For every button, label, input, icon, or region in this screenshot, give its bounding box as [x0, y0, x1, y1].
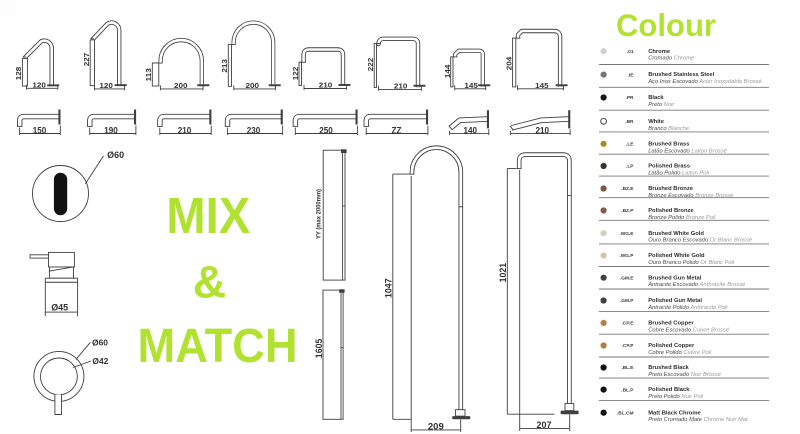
- svg-text:Ø60: Ø60: [92, 337, 108, 347]
- svg-text:Preto Escovado Noir Brossé: Preto Escovado Noir Brossé: [648, 372, 722, 378]
- svg-text:Polished Brass: Polished Brass: [648, 164, 690, 170]
- svg-text:.BL.CM: .BL.CM: [617, 410, 634, 416]
- svg-text:.BL.P: .BL.P: [621, 387, 634, 393]
- svg-text:200: 200: [246, 81, 260, 90]
- svg-text:.CP.E: .CP.E: [622, 321, 635, 327]
- svg-text:128: 128: [14, 67, 23, 81]
- svg-text:210: 210: [178, 126, 192, 136]
- svg-text:Brushed Bronze: Brushed Bronze: [648, 186, 694, 192]
- svg-text:&: &: [193, 257, 227, 308]
- svg-text:YY (max 2000mm): YY (max 2000mm): [316, 189, 323, 239]
- svg-text:Brushed White Gold: Brushed White Gold: [648, 231, 704, 237]
- svg-text:145: 145: [535, 81, 549, 90]
- svg-text:Preto Polido Noir Poli: Preto Polido Noir Poli: [648, 394, 704, 400]
- svg-text:.01: .01: [627, 49, 634, 55]
- svg-text:.BZ.E: .BZ.E: [621, 186, 634, 192]
- svg-text:Preto Noir: Preto Noir: [648, 102, 675, 108]
- svg-text:.GM.P: .GM.P: [620, 298, 634, 304]
- svg-text:Black: Black: [648, 95, 664, 101]
- svg-text:Ouro Branco Polido Or Blanc Po: Ouro Branco Polido Or Blanc Poli: [648, 260, 735, 266]
- svg-text:.LP: .LP: [626, 164, 634, 170]
- svg-text:Bronze Polido Bronze Poli: Bronze Polido Bronze Poli: [648, 215, 716, 221]
- svg-text:Chrome: Chrome: [648, 49, 671, 55]
- svg-text:.IE: .IE: [628, 72, 635, 78]
- svg-text:Ø60: Ø60: [107, 150, 124, 160]
- svg-text:.PR: .PR: [626, 95, 635, 101]
- svg-text:144: 144: [443, 64, 452, 78]
- svg-text:Polished Black: Polished Black: [648, 387, 690, 393]
- svg-text:Antracite Escovado Anthracite: Antracite Escovado Anthracite Brossé: [647, 282, 746, 288]
- svg-text:.BZ.P: .BZ.P: [621, 208, 634, 214]
- svg-text:.BL.E: .BL.E: [621, 365, 634, 371]
- svg-text:1047: 1047: [383, 278, 393, 298]
- svg-text:ZZ: ZZ: [392, 126, 402, 136]
- svg-text:227: 227: [82, 53, 91, 67]
- svg-text:.WG.E: .WG.E: [619, 231, 634, 237]
- svg-text:Brushed Brass: Brushed Brass: [648, 141, 689, 147]
- svg-text:Brushed Gun Metal: Brushed Gun Metal: [648, 275, 702, 281]
- svg-text:MIX: MIX: [166, 187, 250, 244]
- svg-text:213: 213: [220, 59, 229, 73]
- svg-text:250: 250: [319, 126, 333, 136]
- svg-text:Cobre Polido Cuivre Poli: Cobre Polido Cuivre Poli: [648, 350, 712, 356]
- svg-text:Colour: Colour: [616, 7, 716, 43]
- svg-text:White: White: [648, 119, 665, 125]
- svg-text:Antracite Polido Anthracite Po: Antracite Polido Anthracite Poli: [647, 305, 728, 311]
- svg-text:.GM.E: .GM.E: [620, 275, 634, 281]
- svg-text:Polished Gun Metal: Polished Gun Metal: [648, 298, 702, 304]
- svg-text:209: 209: [428, 421, 444, 432]
- svg-text:Polished Bronze: Polished Bronze: [648, 208, 694, 214]
- svg-text:210: 210: [319, 81, 333, 90]
- svg-text:1021: 1021: [498, 263, 508, 283]
- svg-text:Cobre Escovado Cuivre Brossé: Cobre Escovado Cuivre Brossé: [648, 327, 730, 333]
- svg-text:113: 113: [144, 68, 153, 82]
- svg-text:Cromado Chrome: Cromado Chrome: [648, 56, 695, 62]
- svg-text:222: 222: [366, 58, 375, 72]
- svg-text:Matt Black Chrome: Matt Black Chrome: [648, 410, 701, 416]
- svg-text:230: 230: [247, 126, 261, 136]
- svg-text:Brushed Copper: Brushed Copper: [648, 321, 694, 327]
- svg-text:204: 204: [505, 56, 514, 70]
- svg-text:200: 200: [174, 81, 188, 90]
- svg-text:Ouro Branco Escovado Or Blanc: Ouro Branco Escovado Or Blanc Brossé: [648, 238, 753, 244]
- svg-text:207: 207: [537, 420, 552, 431]
- svg-text:Aço Inox Escovado Acier Inoxyd: Aço Inox Escovado Acier Inoxydable Bross…: [647, 79, 762, 85]
- svg-text:Latão Polido Laiton Poli: Latão Polido Laiton Poli: [648, 171, 710, 177]
- svg-text:Brushed Black: Brushed Black: [648, 365, 689, 371]
- svg-text:120: 120: [32, 80, 46, 89]
- svg-text:.WG.P: .WG.P: [619, 253, 634, 259]
- svg-text:.CP.P: .CP.P: [622, 343, 635, 349]
- svg-text:Branco Blanche: Branco Blanche: [648, 126, 690, 132]
- svg-text:Polished Copper: Polished Copper: [648, 343, 695, 349]
- svg-text:140: 140: [464, 126, 478, 136]
- svg-text:145: 145: [464, 81, 478, 90]
- svg-text:1605: 1605: [314, 339, 324, 359]
- svg-text:Ø45: Ø45: [51, 302, 68, 312]
- svg-text:Brushed Stainless Steel: Brushed Stainless Steel: [648, 72, 714, 78]
- svg-text:MATCH: MATCH: [138, 320, 298, 373]
- svg-text:Ø42: Ø42: [92, 356, 108, 366]
- svg-text:.BR: .BR: [625, 119, 634, 125]
- svg-text:120: 120: [99, 81, 113, 90]
- svg-text:.LE: .LE: [626, 142, 634, 148]
- svg-text:Latão Escovado Laiton Brossé: Latão Escovado Laiton Brossé: [648, 148, 727, 154]
- svg-text:Polished White Gold: Polished White Gold: [648, 253, 705, 259]
- svg-text:210: 210: [394, 82, 408, 91]
- svg-text:150: 150: [33, 126, 47, 136]
- svg-text:Bronze Escovado Bronze Brossé: Bronze Escovado Bronze Brossé: [648, 193, 734, 199]
- svg-text:Preto Cromado Mate Chrome Noir: Preto Cromado Mate Chrome Noir Mat: [648, 417, 748, 423]
- svg-text:190: 190: [104, 126, 118, 136]
- svg-text:210: 210: [536, 126, 550, 136]
- svg-text:122: 122: [291, 67, 300, 81]
